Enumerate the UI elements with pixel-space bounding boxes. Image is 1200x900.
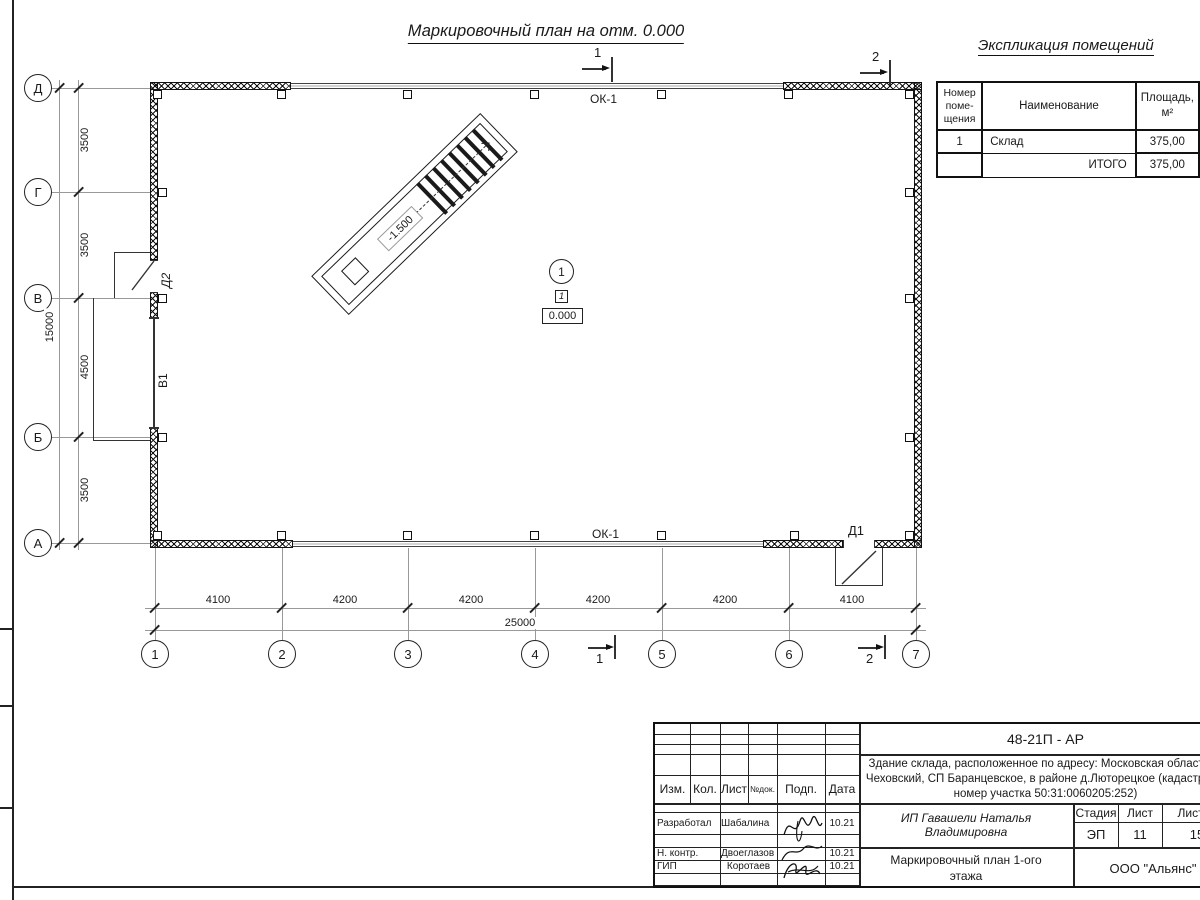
column-marker <box>153 531 162 540</box>
axis-bubble-4: 4 <box>521 640 549 668</box>
door-d1-label: Д1 <box>848 523 864 538</box>
cell-total-label: ИТОГО <box>982 153 1135 177</box>
window-label-bottom: ОК-1 <box>592 527 619 541</box>
column-marker <box>657 90 666 99</box>
cell-total-area: 375,00 <box>1136 153 1199 177</box>
column-marker <box>905 188 914 197</box>
tb-sheets-label: Листов <box>1162 803 1200 822</box>
axis-line <box>49 192 150 193</box>
axis-bubble-b: Б <box>24 423 52 451</box>
dim-label: 4200 <box>710 594 740 606</box>
axis-line <box>49 298 150 299</box>
wall-bottom-mid <box>763 540 843 548</box>
dim-label: 4100 <box>837 594 867 606</box>
signature <box>778 856 825 884</box>
door-d2-jamb <box>150 260 158 261</box>
drawing-sheet: Маркировочный план на отм. 0.000 Д Г В Б… <box>0 0 1200 900</box>
frame-stamp-line-3 <box>0 807 12 809</box>
explication-title: Экспликация помещений <box>978 37 1154 56</box>
section-tick <box>614 635 616 659</box>
column-marker <box>905 531 914 540</box>
axis-line <box>662 548 663 640</box>
axis-line <box>49 88 150 89</box>
frame-stamp-line-1 <box>0 628 12 630</box>
frame-stamp-line-2 <box>0 705 12 707</box>
dim-label: 3500 <box>79 475 91 505</box>
tb-name: Шабалина <box>721 812 776 834</box>
tb-col-data: Дата <box>825 775 859 803</box>
dim-label: 4200 <box>583 594 613 606</box>
tb-col-list: Лист <box>720 775 748 803</box>
title-block: Изм. Кол. Лист №док. Подп. Дата Разработ… <box>653 722 1200 888</box>
header-room-name: Наименование <box>982 82 1135 130</box>
axis-bubble-a: А <box>24 529 52 557</box>
gate-b1-label: В1 <box>156 373 170 388</box>
axis-line <box>282 548 283 640</box>
wall-left-top <box>150 82 158 260</box>
floor-level-box: 0.000 <box>542 308 583 324</box>
tb-company: ООО "Альянс" <box>1074 848 1200 888</box>
dim-label-total: 15000 <box>44 309 56 346</box>
table-row: ИТОГО 375,00 <box>937 153 1199 177</box>
door-d1-porch-line <box>835 548 836 586</box>
dim-label: 3500 <box>79 125 91 155</box>
door-d1-porch-line <box>882 548 883 586</box>
dim-label: 4200 <box>330 594 360 606</box>
section-tick <box>889 60 891 85</box>
tb-col-kol: Кол. <box>690 775 720 803</box>
explication-table: Номер поме- щения Наименование Площадь, … <box>936 81 1200 178</box>
column-marker <box>657 531 666 540</box>
tb-sheet-value: 11 <box>1118 822 1162 847</box>
axis-bubble-6: 6 <box>775 640 803 668</box>
tb-col-ndok: №док. <box>748 775 777 803</box>
header-room-number: Номер поме- щения <box>937 82 982 130</box>
column-marker <box>905 90 914 99</box>
column-marker <box>790 531 799 540</box>
dim-line-horizontal-total <box>145 630 926 631</box>
tb-col-izm: Изм. <box>655 775 690 803</box>
dim-label: 4200 <box>456 594 486 606</box>
axis-bubble-5: 5 <box>648 640 676 668</box>
tb-stage-value: ЭП <box>1074 822 1118 847</box>
tb-role: Разработал <box>657 812 719 834</box>
stair-direction-arrowhead <box>481 143 489 151</box>
axis-bubble-g: Г <box>24 178 52 206</box>
gate-b1-tick-bottom <box>149 427 159 429</box>
gate-b1-apron-line <box>93 298 94 440</box>
section-mark-label: 1 <box>596 651 603 666</box>
section-arrowhead <box>606 644 614 650</box>
dim-label: 4100 <box>203 594 233 606</box>
column-marker <box>784 90 793 99</box>
column-marker <box>403 90 412 99</box>
section-mark-label: 2 <box>866 651 873 666</box>
column-marker <box>905 433 914 442</box>
axis-bubble-2: 2 <box>268 640 296 668</box>
tb-name: Двоеглазов <box>721 847 776 860</box>
window-label-top: ОК-1 <box>590 92 617 106</box>
door-d1-swing <box>838 546 880 588</box>
axis-bubble-d: Д <box>24 74 52 102</box>
tb-date: 10.21 <box>825 812 859 834</box>
column-marker <box>277 90 286 99</box>
tb-role: ГИП <box>657 860 719 873</box>
page-title: Маркировочный план на отм. 0.000 <box>408 22 684 44</box>
cell-room-number: 1 <box>937 130 982 153</box>
door-d2-porch-line <box>114 252 115 298</box>
tb-sheets-value: 15 <box>1162 822 1200 847</box>
section-tick <box>611 57 613 82</box>
axis-bubble-7: 7 <box>902 640 930 668</box>
axis-line <box>408 548 409 640</box>
column-marker <box>158 188 167 197</box>
loading-ramp: -1.500 <box>311 113 518 315</box>
door-d2-jamb <box>150 292 158 293</box>
door-d2-swing <box>128 256 158 296</box>
tb-name: Коротаев <box>721 860 776 873</box>
door-d2-label: Д2 <box>159 273 173 288</box>
tb-role: Н. контр. <box>657 847 719 860</box>
section-arrowhead <box>880 69 888 75</box>
section-mark-label: 1 <box>594 45 601 60</box>
cell-room-number <box>937 153 982 177</box>
section-tick <box>884 635 886 659</box>
gate-b1-tick-top <box>149 317 159 319</box>
tb-date: 10.21 <box>825 860 859 873</box>
gate-b1-apron-line <box>93 440 150 441</box>
column-marker <box>158 294 167 303</box>
column-marker <box>277 531 286 540</box>
section-arrowhead <box>602 65 610 71</box>
table-row: 1 Склад 375,00 <box>937 130 1199 153</box>
wall-right <box>914 82 922 548</box>
column-marker <box>158 433 167 442</box>
tb-drawing-name: Маркировочный план 1-ого этажа <box>859 848 1073 888</box>
dim-line-vertical-total <box>59 80 60 550</box>
column-marker <box>153 90 162 99</box>
dim-line-horizontal-segments <box>145 608 926 609</box>
column-marker <box>403 531 412 540</box>
wall-top-left <box>150 82 291 90</box>
tb-doc-code: 48-21П - АР <box>859 724 1200 754</box>
axis-line <box>49 437 150 438</box>
table-header-row: Номер поме- щения Наименование Площадь, … <box>937 82 1199 130</box>
tb-sheet-label: Лист <box>1118 803 1162 822</box>
wall-bottom-left <box>150 540 293 548</box>
room-number-box: 1 <box>555 290 568 303</box>
window-band-top <box>291 83 783 89</box>
axis-line <box>789 548 790 640</box>
door-d1-jamb <box>874 540 875 548</box>
tb-col-podp: Подп. <box>777 775 825 803</box>
wall-left-bottom <box>150 428 158 548</box>
tb-stage-label: Стадия <box>1074 803 1118 822</box>
frame-left <box>12 0 14 900</box>
cell-room-name: Склад <box>982 130 1135 153</box>
axis-bubble-1: 1 <box>141 640 169 668</box>
section-mark-label: 2 <box>872 49 879 64</box>
column-marker <box>905 294 914 303</box>
header-room-area: Площадь, м² <box>1136 82 1199 130</box>
room-number-bubble: 1 <box>549 259 574 284</box>
wall-top-right <box>783 82 922 90</box>
gate-b1-leaf <box>153 318 155 428</box>
dim-label: 3500 <box>79 230 91 260</box>
column-marker <box>530 531 539 540</box>
door-d2-porch-line <box>114 252 150 253</box>
column-marker <box>530 90 539 99</box>
cell-room-area: 375,00 <box>1136 130 1199 153</box>
axis-bubble-3: 3 <box>394 640 422 668</box>
section-arrowhead <box>876 644 884 650</box>
tb-designer: ИП Гавашели Наталья Владимировна <box>859 803 1073 847</box>
window-band-bottom <box>293 541 763 547</box>
door-d1-jamb <box>843 540 844 548</box>
tb-object-description: Здание склада, расположенное по адресу: … <box>859 755 1200 803</box>
axis-line <box>49 543 150 544</box>
dim-label-total: 25000 <box>502 617 539 629</box>
dim-label: 4500 <box>79 352 91 382</box>
tb-date: 10.21 <box>825 847 859 860</box>
